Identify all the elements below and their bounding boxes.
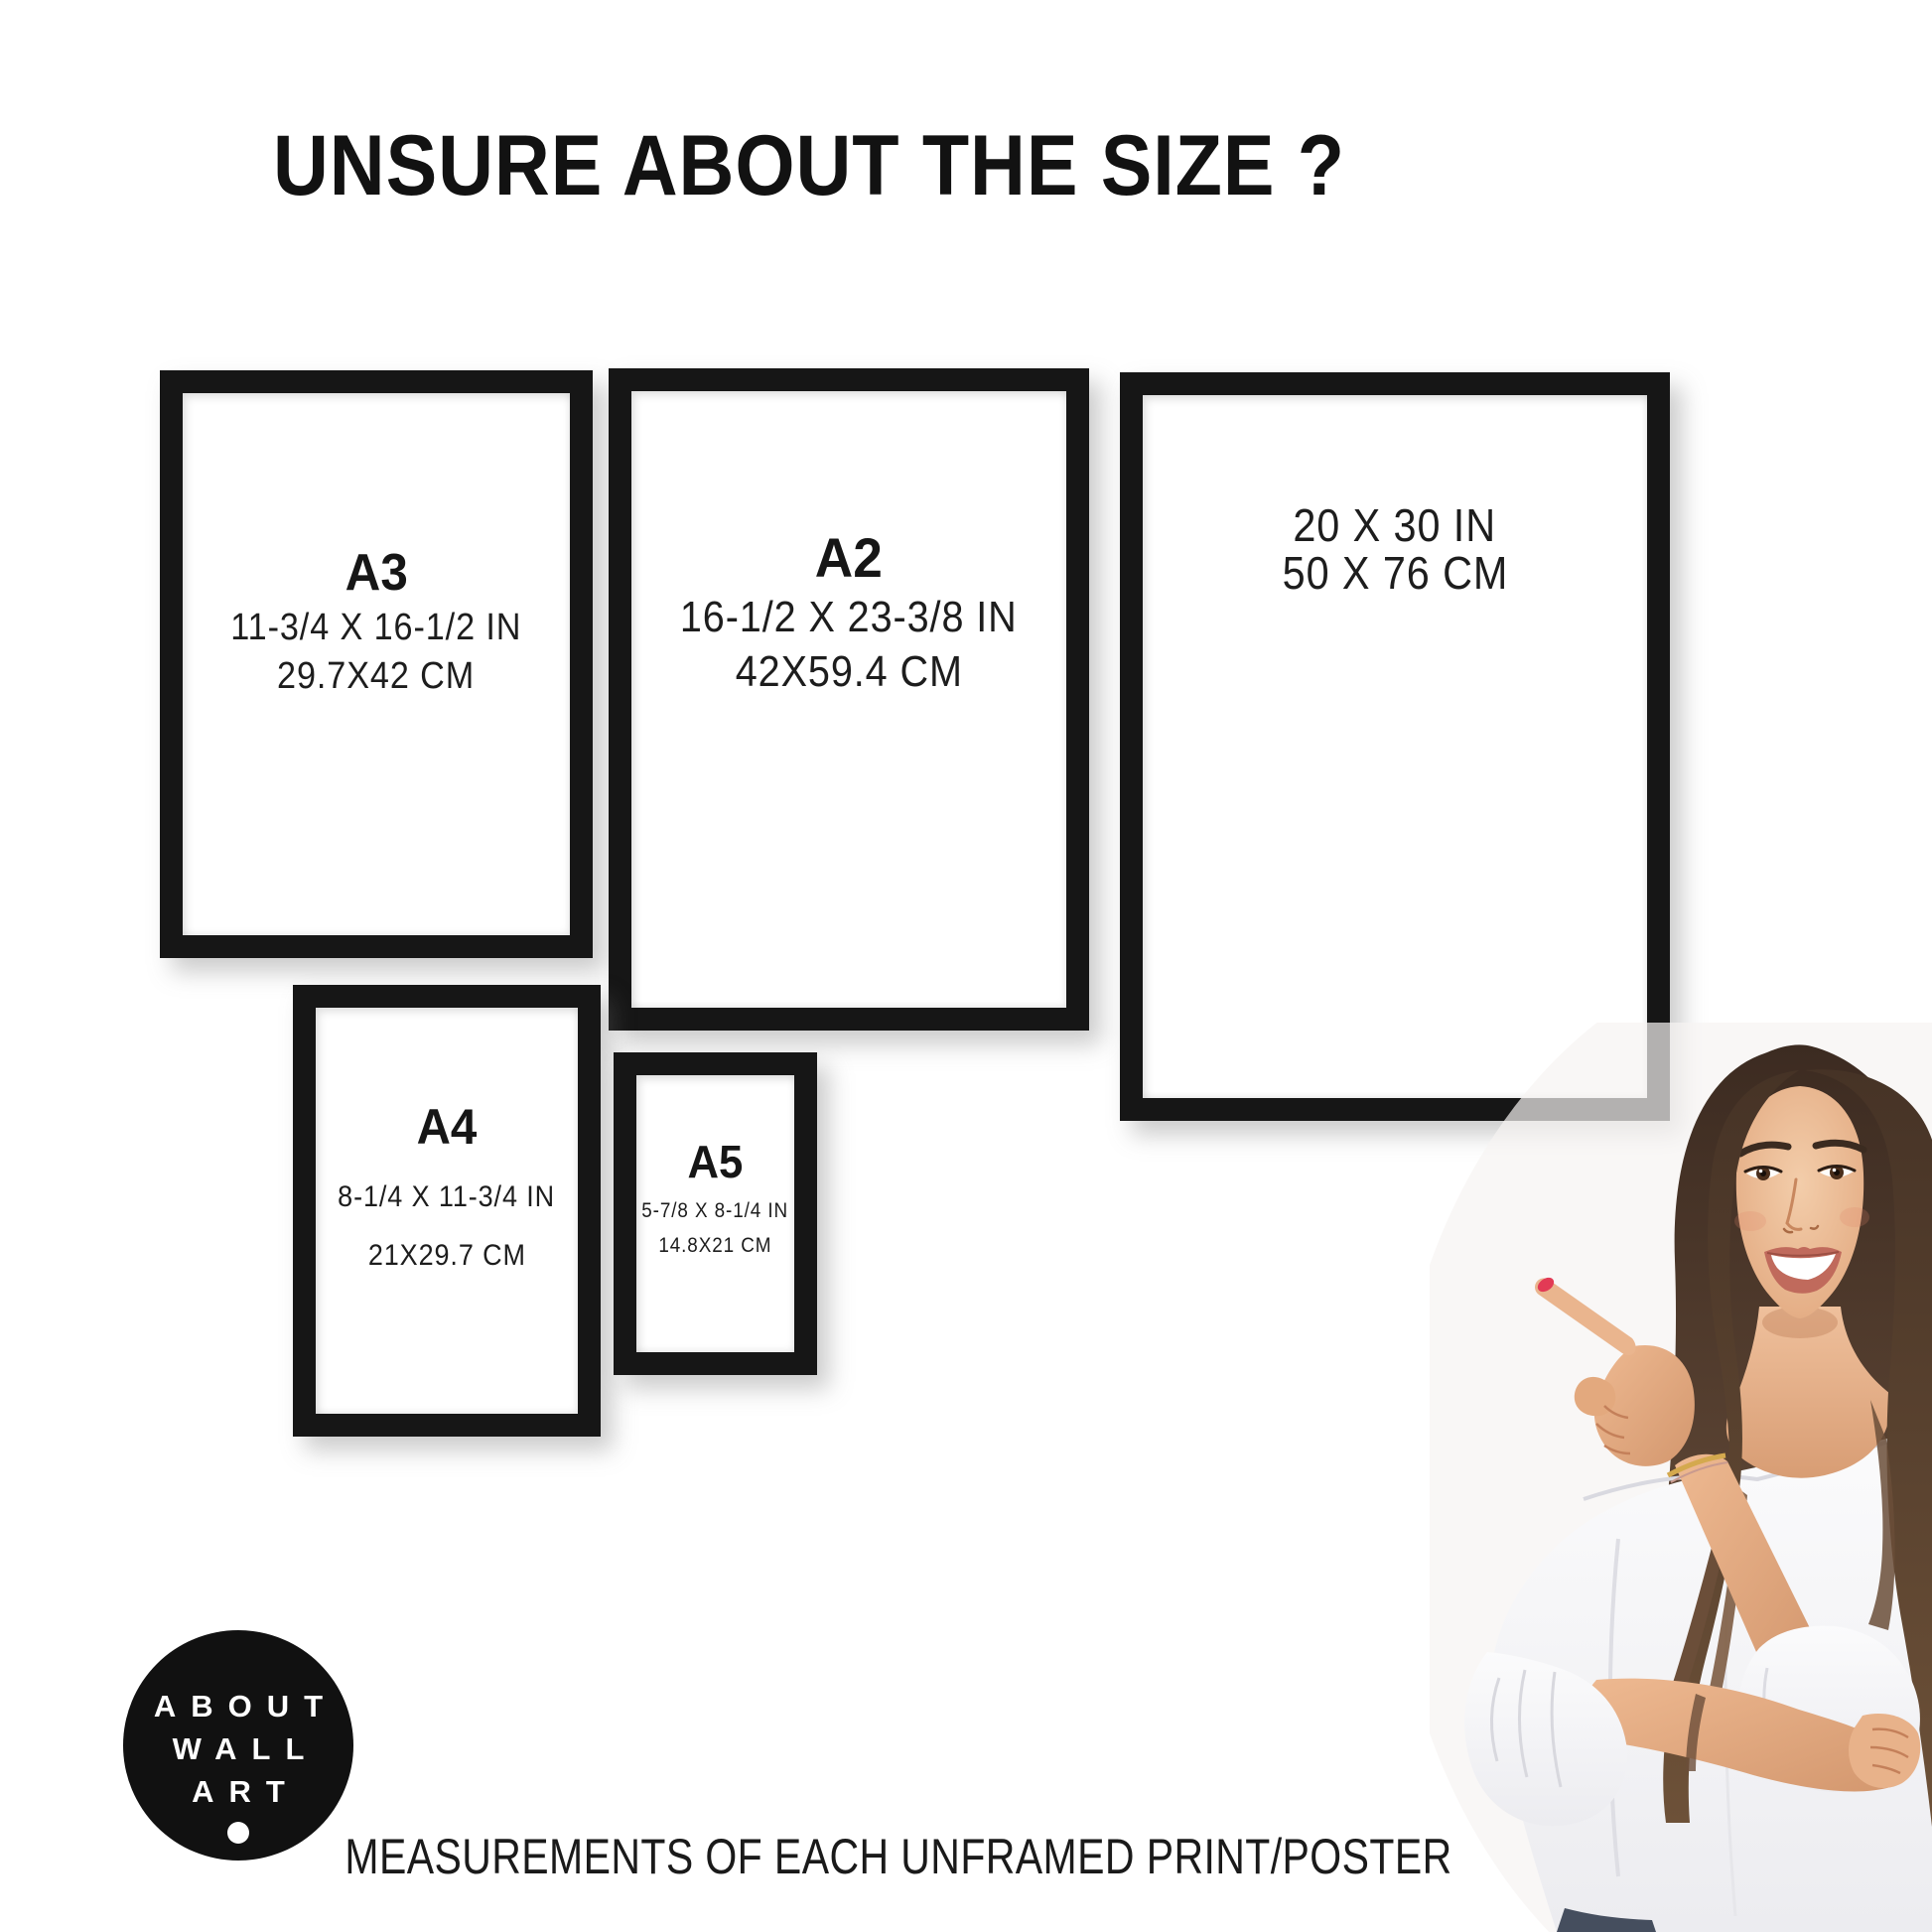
woman-pointing-illustration [1430,1023,1932,1932]
brand-logo-line-2: WALL [123,1728,368,1771]
frame-20x30-cm: 50 X 76 CM [1282,549,1508,597]
brand-logo-line-3: ART [123,1771,368,1814]
frame-a2-label: A2 [815,526,883,590]
frame-a2-cm: 42X59.4 CM [735,644,962,699]
frame-a4-cm: 21X29.7 CM [367,1227,525,1286]
frame-a3-label: A3 [345,544,407,604]
frame-a5-inches: 5-7/8 X 8-1/4 IN [642,1193,789,1229]
frame-20x30-inches: 20 X 30 IN [1294,501,1497,549]
frame-20x30: 20 X 30 IN 50 X 76 CM [1120,372,1670,1121]
left-eye-highlight [1759,1170,1763,1173]
frame-a4-label: A4 [417,1100,478,1155]
brand-logo-line-1: ABOUT [123,1686,368,1728]
left-blush [1734,1211,1766,1231]
frame-a5-cm: 14.8X21 CM [658,1228,771,1264]
frame-a5: A5 5-7/8 X 8-1/4 IN 14.8X21 CM [614,1052,817,1375]
frame-a4-inches: 8-1/4 X 11-3/4 IN [339,1169,556,1227]
frame-a2: A2 16-1/2 X 23-3/8 IN 42X59.4 CM [609,368,1089,1031]
right-blush [1840,1207,1869,1227]
frame-a3: A3 11-3/4 X 16-1/2 IN 29.7X42 CM [160,370,593,958]
frame-a2-inches: 16-1/2 X 23-3/8 IN [680,590,1018,644]
right-eye-highlight [1833,1169,1837,1173]
frame-a4: A4 8-1/4 X 11-3/4 IN 21X29.7 CM [293,985,601,1437]
caption-text: MEASUREMENTS OF EACH UNFRAMED PRINT/POST… [345,1828,1451,1885]
page-title: UNSURE ABOUT THE SIZE ? [273,117,1345,215]
page-title-row: UNSURE ABOUT THE SIZE ? [0,117,1618,215]
frame-a3-inches: 11-3/4 X 16-1/2 IN [230,604,521,652]
poster-size-guide: UNSURE ABOUT THE SIZE ? A3 11-3/4 X 16-1… [0,0,1932,1932]
crossed-hand [1849,1714,1920,1788]
frame-a3-cm: 29.7X42 CM [277,652,475,701]
frame-a5-label: A5 [688,1137,744,1187]
brand-logo: ABOUT WALL ART [123,1630,353,1861]
